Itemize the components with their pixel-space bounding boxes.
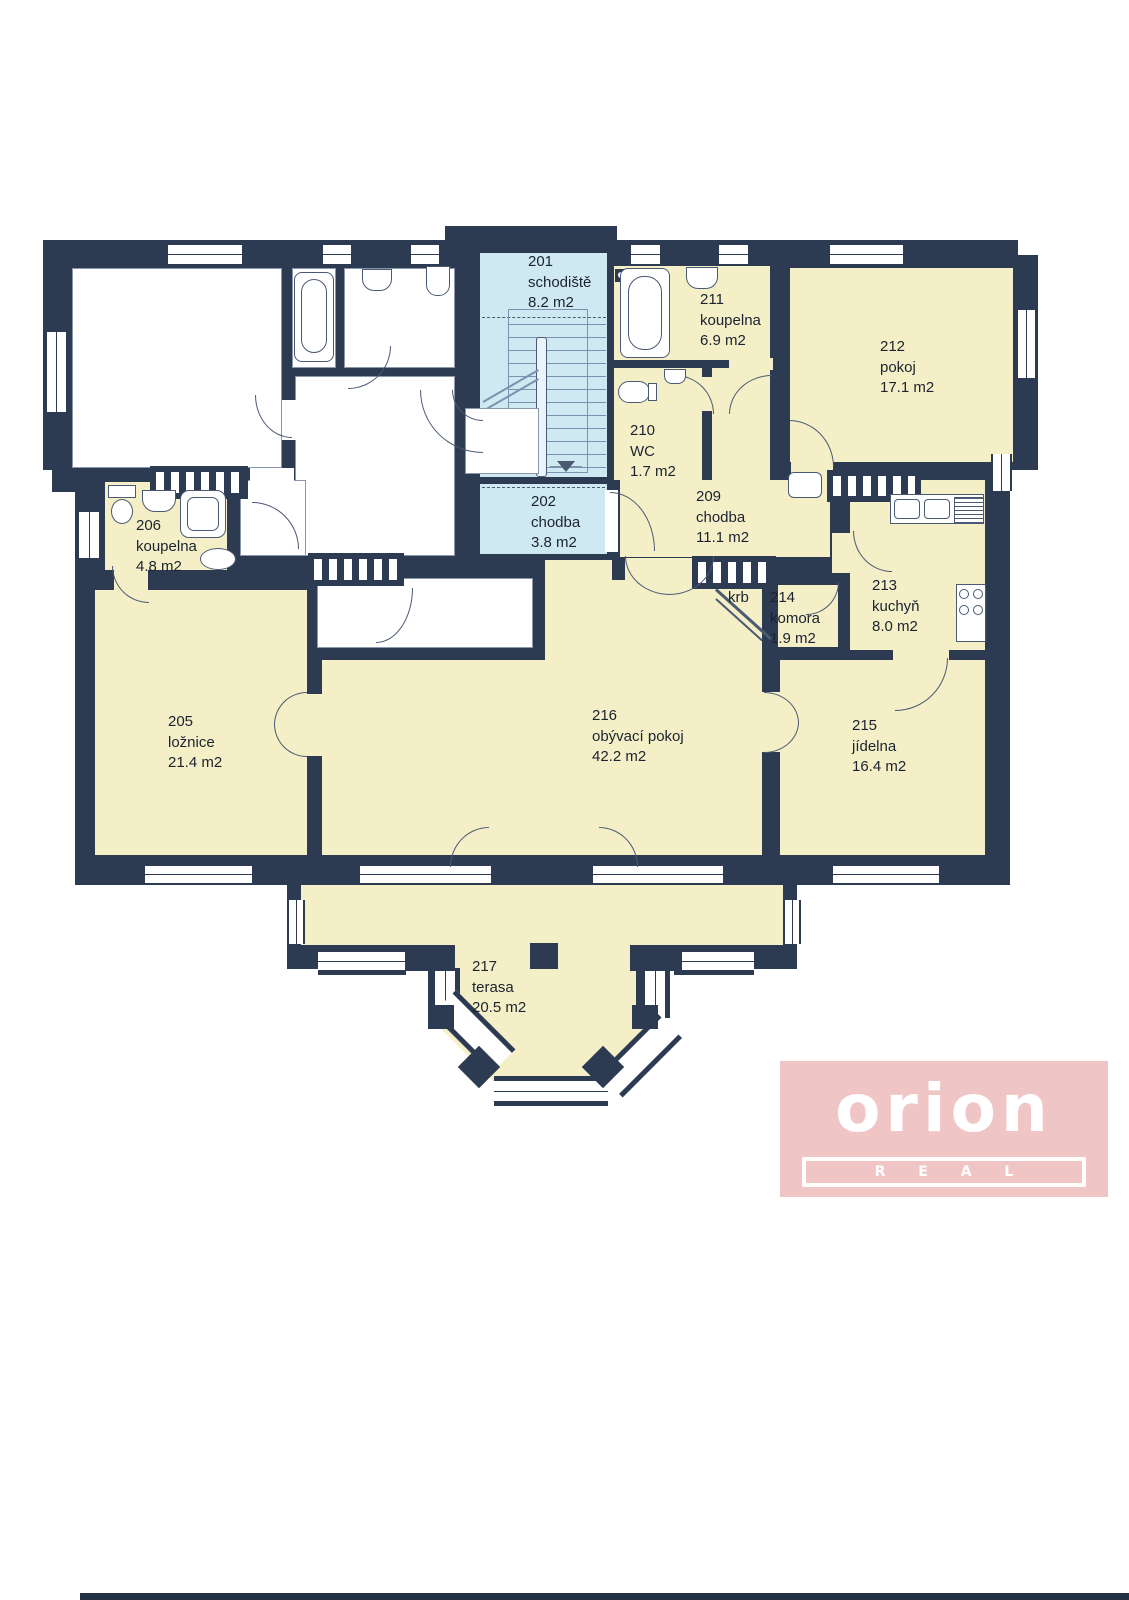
room-name: WC [630, 442, 676, 463]
window [77, 512, 101, 558]
room-name: koupelna [700, 311, 761, 332]
terrace-pillar [405, 945, 455, 971]
room-label-212: 212 pokoj 17.1 m2 [880, 337, 934, 399]
window [168, 243, 242, 266]
terrace-pillar [632, 1005, 658, 1029]
room-name: komora [770, 609, 820, 630]
window [145, 864, 252, 885]
fireplace-label: krb [728, 588, 749, 609]
room-number: 213 [872, 576, 920, 597]
room-area: 16.4 m2 [852, 757, 906, 778]
terrace-railing [318, 947, 406, 975]
room-label-217: 217 terasa 20.5 m2 [472, 957, 526, 1019]
room-name: kuchyň [872, 597, 920, 618]
toilet-tank [108, 485, 136, 498]
room-label-213: 213 kuchyň 8.0 m2 [872, 576, 920, 638]
room-area: 8.2 m2 [528, 293, 591, 314]
window [411, 243, 439, 266]
room-name: chodba [531, 513, 580, 534]
bidet-fixture [200, 548, 236, 570]
door-gap [250, 468, 294, 482]
door-gap [729, 358, 773, 370]
room-neighbor-small [317, 578, 533, 648]
room-number: 206 [136, 516, 197, 537]
room-number: 211 [700, 290, 761, 311]
room-name: terasa [472, 978, 526, 999]
room-label-202: 202 chodba 3.8 m2 [531, 492, 580, 554]
stair-down-arrow [557, 461, 575, 472]
room-neighbor-top-left [72, 268, 282, 468]
room-name: ložnice [168, 733, 222, 754]
bathtub-inner [628, 276, 662, 350]
room-area: 4.8 m2 [136, 557, 197, 578]
room-area: 6.9 m2 [700, 331, 761, 352]
room-number: 212 [880, 337, 934, 358]
toilet-fixture [618, 381, 650, 403]
room-number: 210 [630, 421, 676, 442]
room-number: 214 [770, 588, 820, 609]
toilet-fixture [111, 499, 133, 524]
room-216-floor-b [545, 560, 612, 660]
terrace-railing [783, 900, 801, 944]
window [719, 243, 748, 266]
room-number: 209 [696, 487, 749, 508]
room-area: 8.0 m2 [872, 617, 920, 638]
terrace-pillar [630, 945, 682, 971]
room-label-216: 216 obývací pokoj 42.2 m2 [592, 706, 684, 768]
door-gap [306, 694, 323, 756]
scan-artifact [80, 1593, 1129, 1600]
toilet-tank [648, 383, 657, 401]
kitchen-sink-basin [894, 499, 920, 519]
orion-logo-real-text: R E A L [861, 1164, 1028, 1180]
room-area: 21.4 m2 [168, 753, 222, 774]
room-label-214: 214 komora 1.9 m2 [770, 588, 820, 650]
room-name: schodiště [528, 273, 591, 294]
window [830, 243, 903, 266]
room-name: pokoj [880, 358, 934, 379]
room-name: obývací pokoj [592, 727, 684, 748]
room-number: 216 [592, 706, 684, 727]
window [833, 864, 939, 885]
window [45, 332, 68, 412]
stove-burner [973, 605, 983, 615]
french-door [360, 864, 491, 885]
wall-stairwell-top [445, 226, 617, 254]
room-name: jídelna [852, 737, 906, 758]
room-label-209: 209 chodba 11.1 m2 [696, 487, 749, 549]
room-area: 3.8 m2 [531, 533, 580, 554]
room-name: koupelna [136, 537, 197, 558]
wall-step-left [52, 470, 102, 492]
window [323, 243, 351, 266]
hall-202-dash-line [482, 487, 605, 488]
terrace-railing [674, 947, 754, 975]
terrace-chimney [530, 943, 558, 969]
terrace-railing [287, 900, 305, 944]
sink-fixture [142, 490, 176, 512]
radiator [788, 472, 822, 498]
room-number: 215 [852, 716, 906, 737]
terrace-pillar [428, 1005, 454, 1029]
floor-plan-page: 201 schodiště 8.2 m2 202 chodba 3.8 m2 2… [0, 0, 1129, 1600]
room-label-206: 206 koupelna 4.8 m2 [136, 516, 197, 578]
stove-burner [973, 589, 983, 599]
room-217-floor [287, 885, 797, 1090]
sink-fixture [664, 369, 686, 384]
wall-square-row [308, 553, 404, 586]
room-label-215: 215 jídelna 16.4 m2 [852, 716, 906, 778]
room-area: 11.1 m2 [696, 528, 749, 549]
room-number: 202 [531, 492, 580, 513]
orion-logo-real-box: R E A L [802, 1157, 1086, 1187]
room-label-210: 210 WC 1.7 m2 [630, 421, 676, 483]
window [1016, 310, 1037, 378]
french-door [593, 864, 723, 885]
door-gap [832, 533, 852, 573]
sink-fixture [686, 267, 718, 289]
room-label-211: 211 koupelna 6.9 m2 [700, 290, 761, 352]
room-label-205: 205 ložnice 21.4 m2 [168, 712, 222, 774]
room-number: 217 [472, 957, 526, 978]
stove-burner [959, 605, 969, 615]
room-label-201: 201 schodiště 8.2 m2 [528, 252, 591, 314]
room-area: 1.7 m2 [630, 462, 676, 483]
orion-real-logo: orion R E A L [780, 1061, 1108, 1197]
stove-burner [959, 589, 969, 599]
room-number: 205 [168, 712, 222, 733]
kitchen-drainer [954, 497, 984, 524]
room-area: 20.5 m2 [472, 998, 526, 1019]
window [631, 243, 660, 266]
room-216-floor [322, 660, 762, 855]
room-area: 17.1 m2 [880, 378, 934, 399]
sink-fixture [362, 269, 392, 291]
room-name: chodba [696, 508, 749, 529]
kitchen-sink-basin [924, 499, 950, 519]
room-number: 201 [528, 252, 591, 273]
window [991, 454, 1012, 491]
room-area: 1.9 m2 [770, 629, 820, 650]
room-area: 42.2 m2 [592, 747, 684, 768]
bathtub-inner [301, 279, 327, 353]
toilet-fixture [426, 266, 450, 296]
terrace-railing [494, 1076, 608, 1106]
orion-logo-wordmark: orion [780, 1059, 1108, 1159]
